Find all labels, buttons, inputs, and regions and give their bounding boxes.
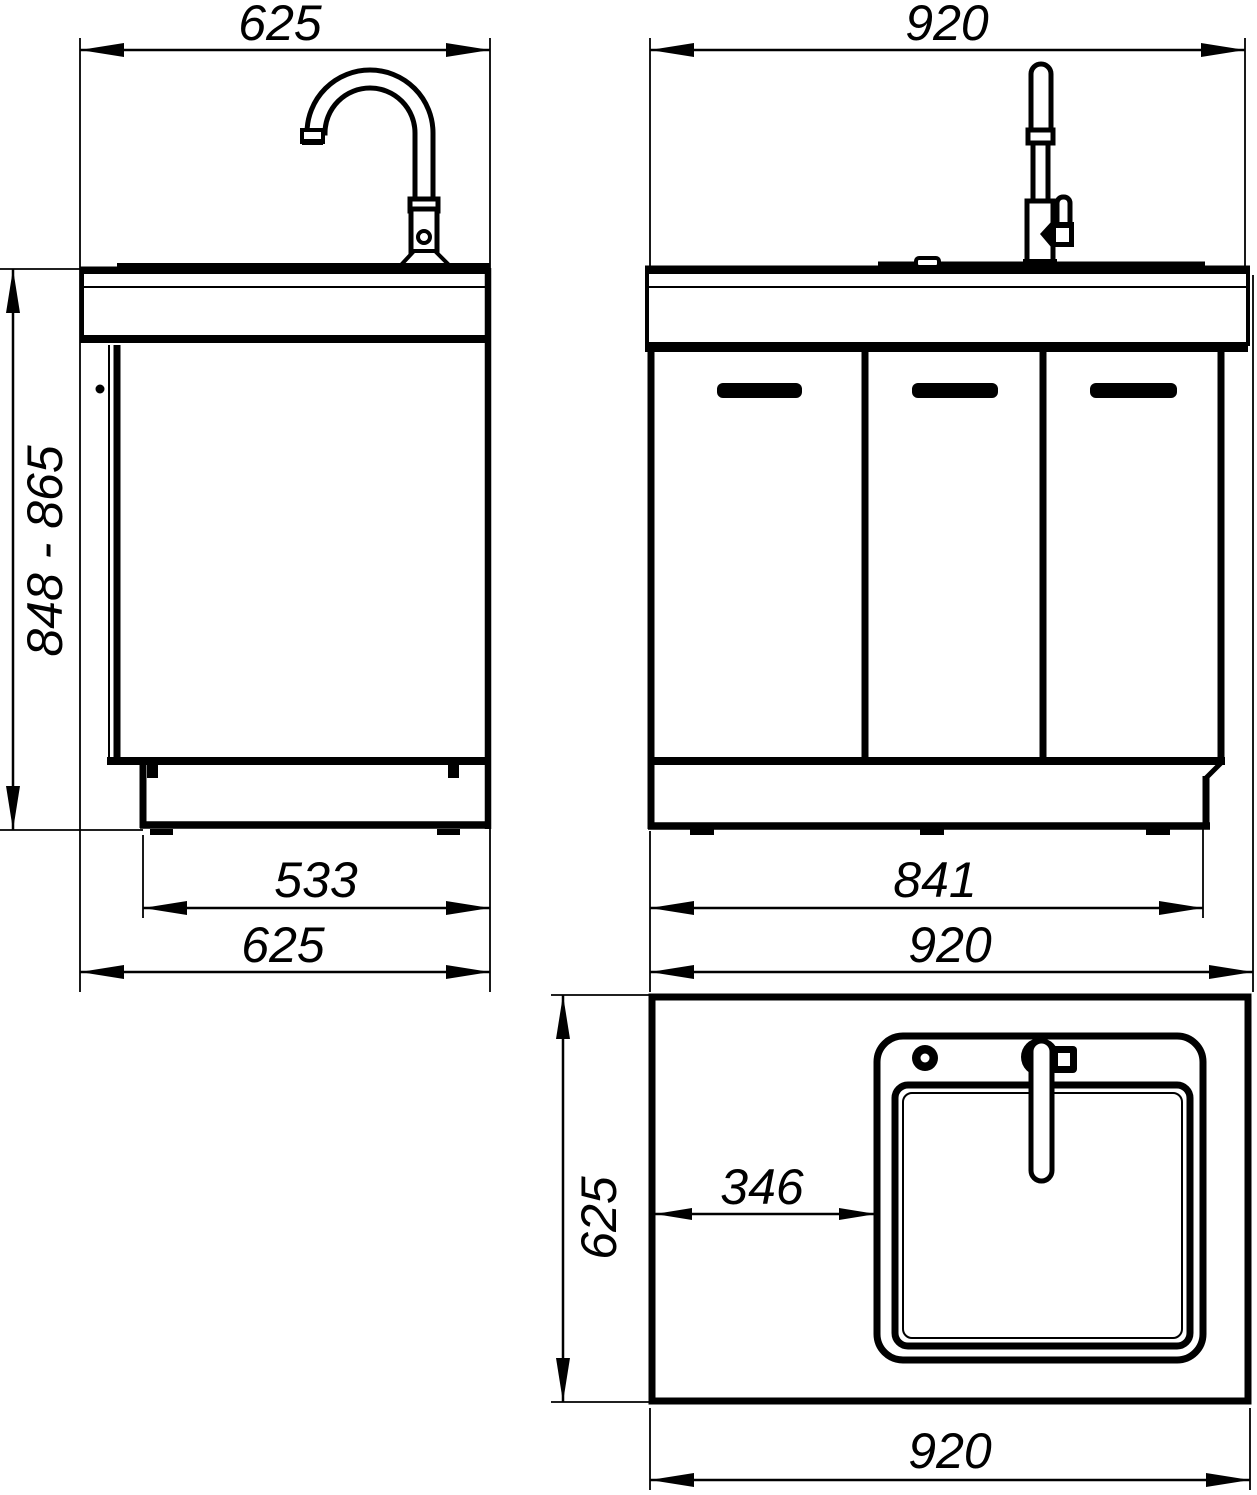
- side-faucet-aerator: [302, 139, 323, 145]
- label-side-top-width: 625: [238, 0, 322, 51]
- plan-extra-hole-center: [921, 1054, 930, 1063]
- front-door-handle-2: [912, 383, 998, 398]
- front-foot-pad-1: [690, 827, 714, 835]
- side-view: [80, 70, 491, 835]
- front-door-handle-3: [1090, 383, 1177, 398]
- label-side-plinth-depth: 533: [274, 852, 358, 908]
- front-countertop: [647, 272, 1248, 344]
- front-faucet-handle-hole: [1056, 228, 1069, 242]
- front-foot-pad-2: [920, 827, 944, 835]
- label-plan-overall-width: 920: [908, 1423, 992, 1479]
- side-faucet-base: [401, 251, 449, 265]
- front-faucet-base: [1023, 259, 1057, 268]
- label-side-height-range: 848 - 865: [17, 445, 73, 656]
- label-side-overall-depth: 625: [241, 917, 325, 973]
- technical-drawing-sink-cabinet: 625 848 - 865 533 625 920 841 920 625 34…: [0, 0, 1257, 1495]
- label-front-top-width: 920: [905, 0, 989, 51]
- side-foot-front: [147, 765, 158, 778]
- front-view: [645, 64, 1250, 835]
- plan-faucet-handle-hole: [1058, 1053, 1070, 1066]
- side-foot-pad-front: [150, 829, 173, 835]
- front-faucet-riser: [1031, 64, 1051, 137]
- label-front-overall-width: 920: [908, 917, 992, 973]
- front-sink-hole-bump: [916, 258, 939, 267]
- side-countertop: [82, 272, 488, 338]
- drawing-linework: 625 848 - 865 533 625 920 841 920 625 34…: [0, 0, 1257, 1495]
- front-faucet-riser-lower: [1033, 143, 1048, 203]
- label-plan-sink-offset: 346: [720, 1159, 804, 1215]
- label-front-plinth-width: 841: [893, 852, 976, 908]
- dim-front-top-width: [650, 38, 1245, 266]
- front-door-handle-1: [717, 383, 802, 398]
- side-hinge-dot: [96, 385, 105, 394]
- side-foot-pad-back: [437, 829, 460, 835]
- side-foot-back: [448, 765, 459, 778]
- side-faucet-gooseneck-spout: [307, 70, 433, 202]
- side-faucet-pivot-hole: [418, 231, 430, 243]
- plan-faucet-spout: [1031, 1041, 1052, 1181]
- label-plan-depth: 625: [571, 1176, 627, 1260]
- front-foot-pad-3: [1146, 827, 1170, 835]
